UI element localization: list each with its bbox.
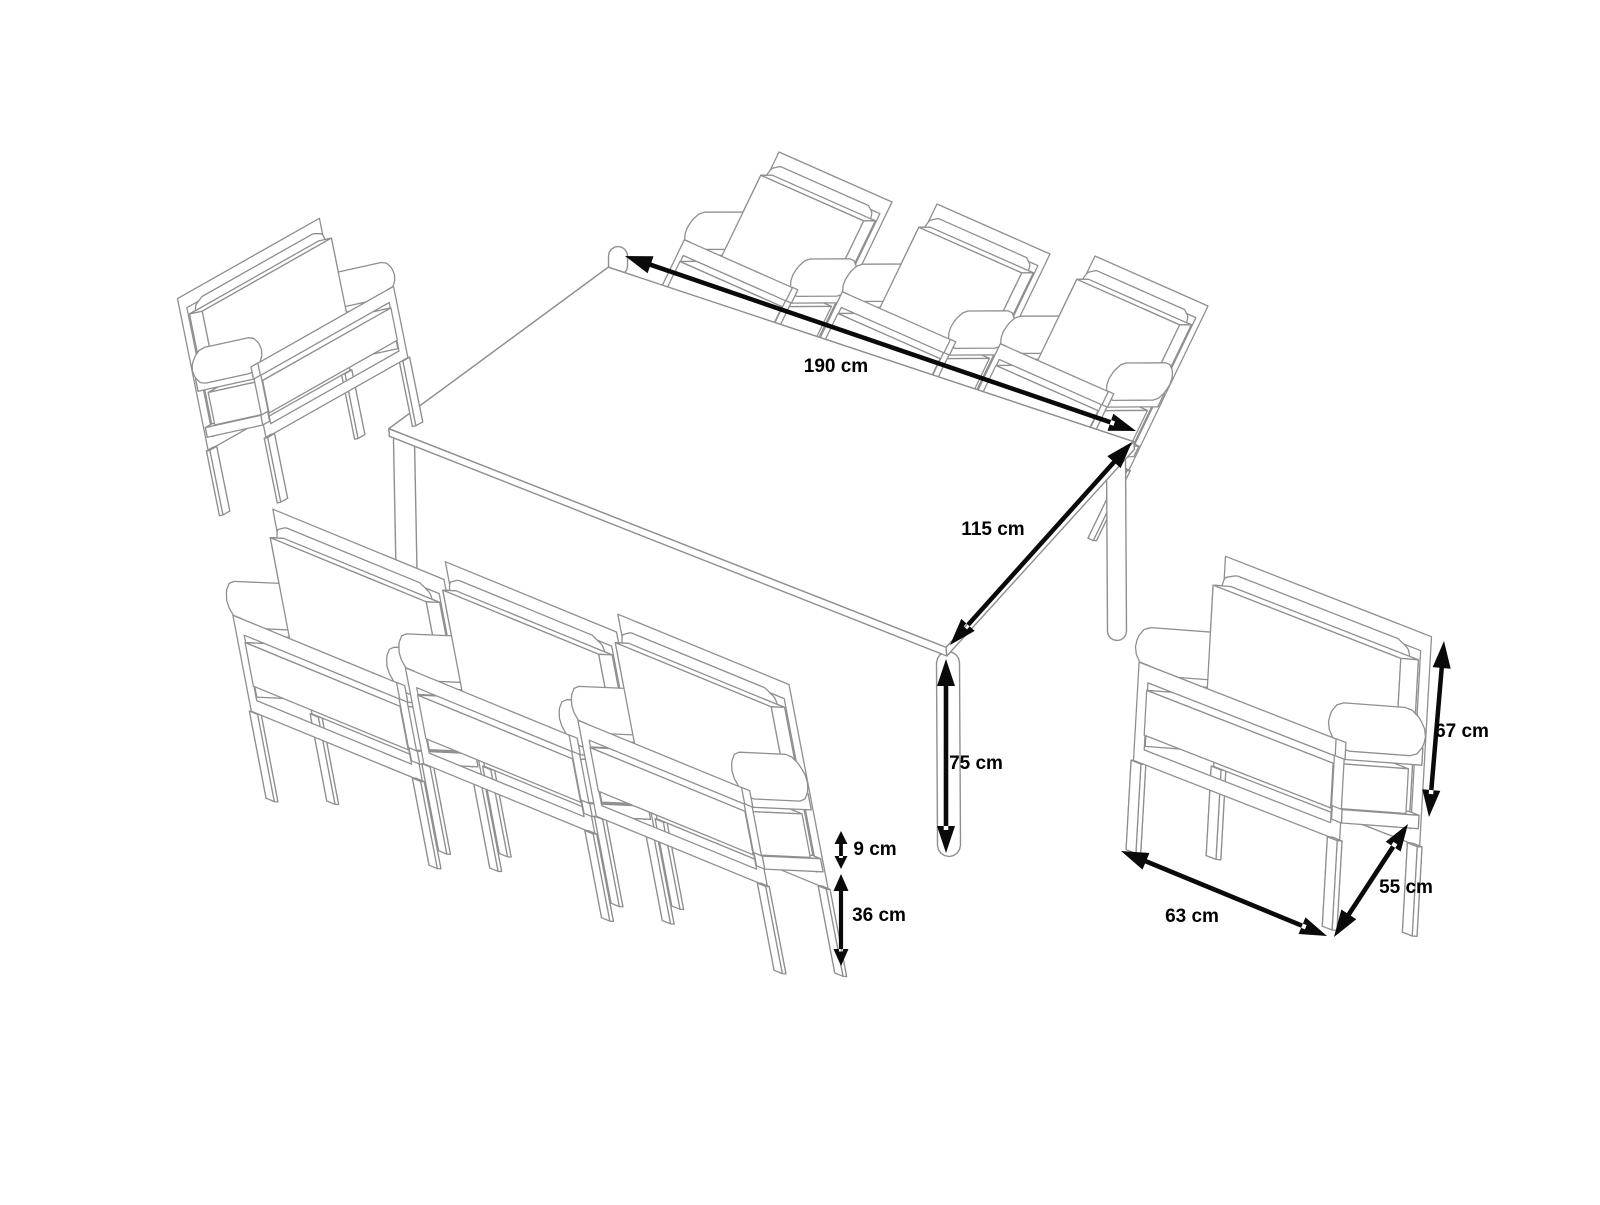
svg-text:36 cm: 36 cm bbox=[852, 905, 906, 926]
svg-text:9 cm: 9 cm bbox=[853, 839, 896, 860]
svg-text:190 cm: 190 cm bbox=[804, 356, 868, 377]
svg-text:55 cm: 55 cm bbox=[1379, 877, 1433, 898]
svg-text:67 cm: 67 cm bbox=[1435, 721, 1489, 742]
svg-text:63 cm: 63 cm bbox=[1165, 906, 1219, 927]
svg-text:75 cm: 75 cm bbox=[949, 753, 1003, 774]
svg-text:115 cm: 115 cm bbox=[961, 519, 1024, 540]
